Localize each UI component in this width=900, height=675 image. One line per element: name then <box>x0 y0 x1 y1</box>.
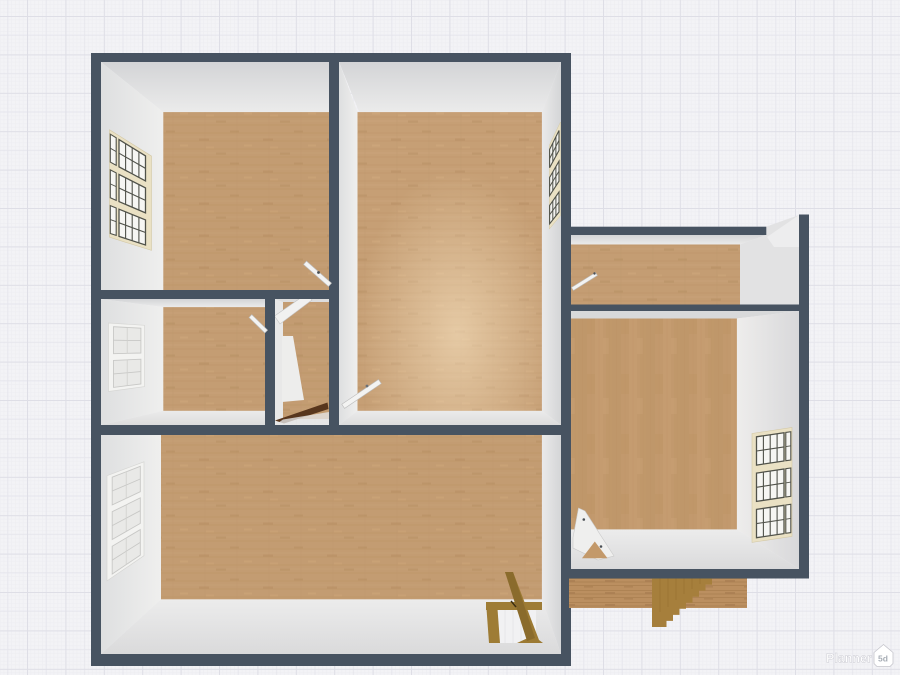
svg-text:Planner: Planner <box>826 652 872 666</box>
svg-text:5d: 5d <box>878 654 888 664</box>
